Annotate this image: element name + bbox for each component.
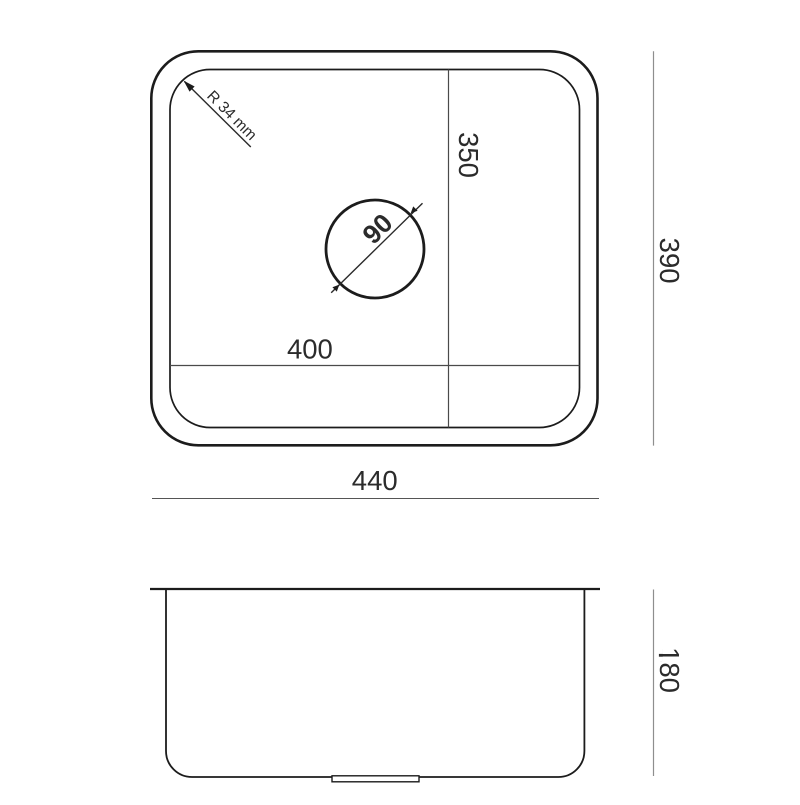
svg-text:350: 350 bbox=[453, 132, 484, 178]
svg-text:180: 180 bbox=[654, 647, 685, 693]
svg-text:390: 390 bbox=[654, 238, 685, 284]
svg-text:440: 440 bbox=[352, 465, 398, 496]
svg-text:400: 400 bbox=[287, 333, 333, 364]
